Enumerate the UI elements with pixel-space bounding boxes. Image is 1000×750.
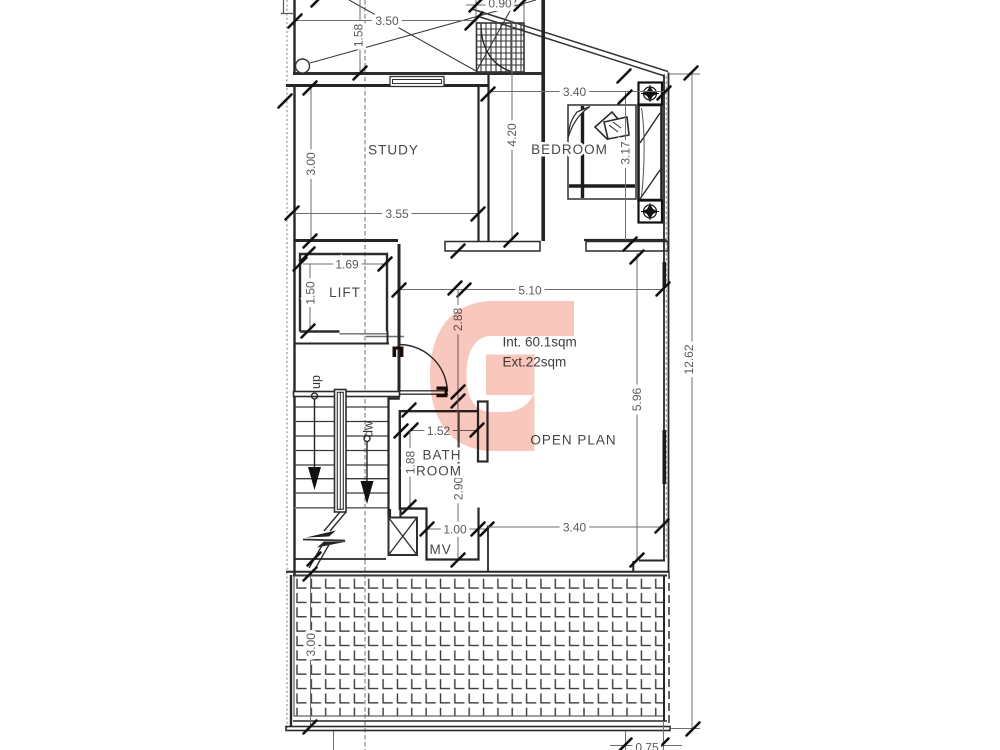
svg-text:3.40: 3.40 bbox=[563, 521, 587, 535]
svg-text:2.90: 2.90 bbox=[452, 476, 466, 500]
svg-text:1.69: 1.69 bbox=[335, 258, 359, 272]
svg-text:0.90: 0.90 bbox=[488, 0, 512, 11]
svg-text:BEDROOM: BEDROOM bbox=[531, 142, 608, 157]
svg-text:3.55: 3.55 bbox=[385, 207, 409, 221]
svg-text:1.58: 1.58 bbox=[352, 23, 366, 47]
svg-text:3.00: 3.00 bbox=[304, 633, 318, 657]
svg-text:LIFT: LIFT bbox=[329, 285, 361, 300]
svg-text:Int. 60.1sqm: Int. 60.1sqm bbox=[503, 335, 577, 350]
svg-text:BATH: BATH bbox=[422, 448, 461, 463]
svg-text:up: up bbox=[309, 375, 323, 389]
svg-text:0.75: 0.75 bbox=[635, 741, 659, 750]
svg-text:12.62: 12.62 bbox=[682, 344, 696, 374]
svg-text:1.00: 1.00 bbox=[443, 523, 467, 537]
svg-text:MV: MV bbox=[430, 542, 452, 557]
svg-text:ROOM: ROOM bbox=[416, 464, 462, 479]
svg-text:5.10: 5.10 bbox=[518, 284, 542, 298]
svg-text:3.50: 3.50 bbox=[375, 14, 399, 28]
svg-text:3.17: 3.17 bbox=[619, 141, 633, 165]
svg-text:dw: dw bbox=[362, 420, 376, 437]
svg-text:3.40: 3.40 bbox=[563, 85, 587, 99]
svg-text:STUDY: STUDY bbox=[368, 143, 419, 158]
svg-text:OPEN PLAN: OPEN PLAN bbox=[530, 433, 616, 448]
svg-text:1.50: 1.50 bbox=[304, 281, 318, 305]
svg-text:4.20: 4.20 bbox=[505, 123, 519, 147]
svg-text:5.96: 5.96 bbox=[630, 387, 644, 411]
svg-text:3.00: 3.00 bbox=[304, 152, 318, 176]
